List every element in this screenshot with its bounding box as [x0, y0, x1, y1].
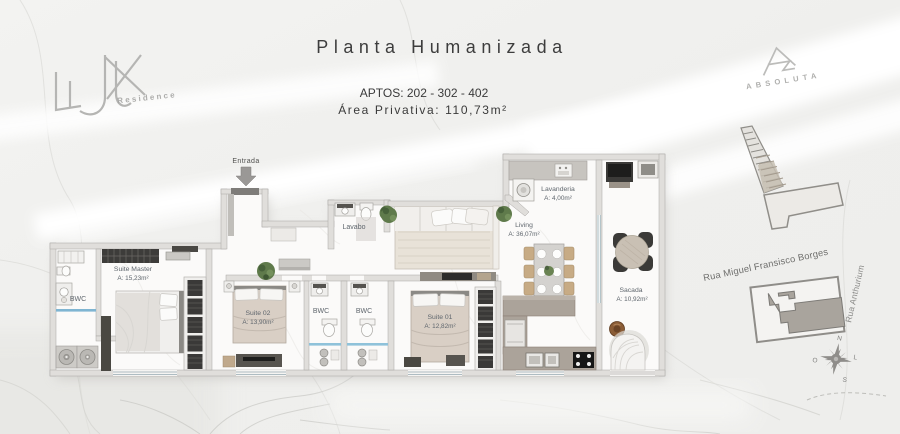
svg-text:A: 4,00m²: A: 4,00m² [544, 195, 572, 202]
svg-text:BWC: BWC [313, 308, 329, 315]
svg-text:APTOS: 202 - 302 - 402: APTOS: 202 - 302 - 402 [360, 86, 489, 100]
svg-text:Living: Living [515, 222, 533, 229]
svg-text:Entrada: Entrada [232, 158, 259, 165]
svg-text:A: 15,23m²: A: 15,23m² [117, 275, 148, 282]
svg-text:Suite 02: Suite 02 [246, 310, 271, 317]
svg-text:BWC: BWC [70, 296, 86, 303]
svg-text:Sacada: Sacada [619, 287, 642, 294]
svg-text:A: 12,82m²: A: 12,82m² [424, 323, 455, 330]
svg-text:A: 36,07m²: A: 36,07m² [508, 231, 539, 238]
svg-text:A: 10,92m²: A: 10,92m² [616, 296, 647, 303]
svg-text:Lavanderia: Lavanderia [541, 186, 575, 193]
svg-text:Lavabo: Lavabo [343, 224, 366, 231]
svg-text:Suite Master: Suite Master [114, 266, 153, 273]
svg-text:Suite 01: Suite 01 [428, 314, 453, 321]
svg-text:BWC: BWC [356, 308, 372, 315]
svg-text:A: 13,90m²: A: 13,90m² [242, 319, 273, 326]
svg-text:Planta Humanizada: Planta Humanizada [316, 37, 567, 57]
svg-text:Área Privativa: 110,73m²: Área Privativa: 110,73m² [338, 102, 508, 117]
